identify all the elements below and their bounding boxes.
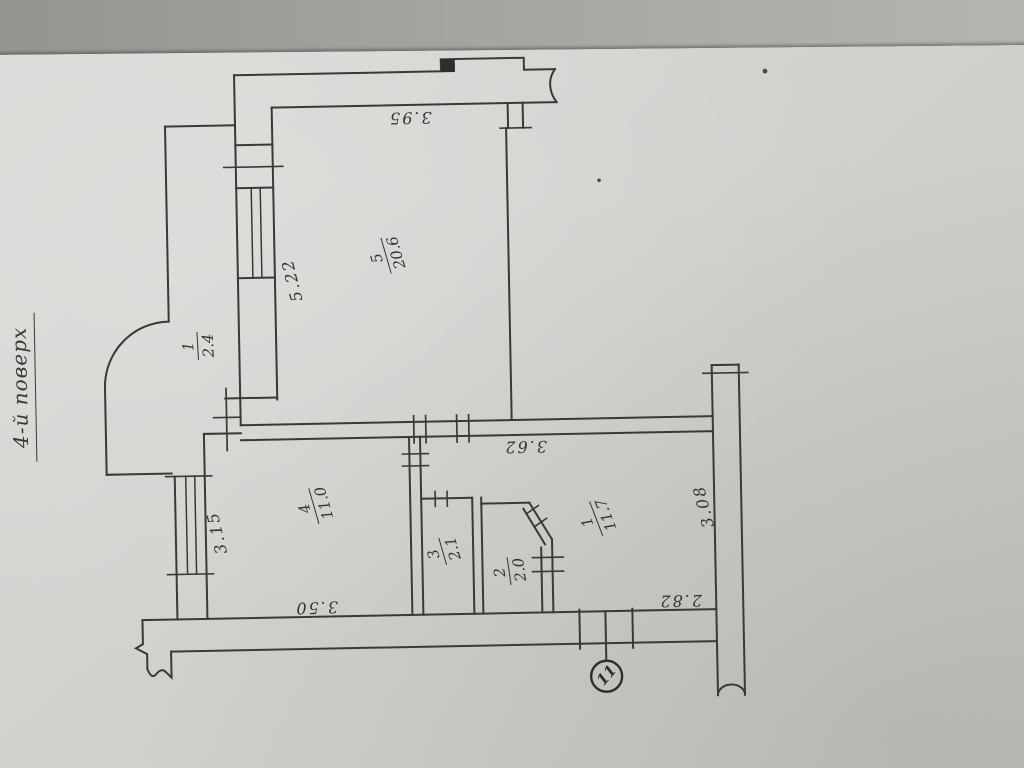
door-jamb-middle-3 (457, 415, 458, 442)
dimension-bottom-right: 2.82 (658, 591, 702, 611)
wall-right-outer (739, 365, 745, 695)
break-line-top-right (550, 69, 557, 102)
door-tick-corridor (214, 417, 241, 418)
floor-plan-drawing (0, 0, 1024, 768)
wall-room3-right-a (472, 498, 474, 614)
window-divider-1 (235, 145, 272, 146)
wall-middle-bottom-edge (241, 431, 713, 440)
door-jamb-middle-1 (414, 416, 415, 443)
room4-top-step (204, 433, 241, 434)
apartment-leader-line (605, 611, 606, 660)
window-room4-tick-top (166, 476, 212, 477)
entry-door-jamb-right (632, 609, 633, 648)
wall-middle-top-edge (241, 416, 713, 425)
window-glazing-2 (260, 188, 262, 278)
break-line-bottom-right (718, 684, 745, 695)
wall-room5-right (506, 128, 512, 420)
window-tick-upper (224, 166, 283, 167)
room2-number: 2 (490, 565, 510, 581)
wall-room5-tick (500, 128, 531, 129)
wall-room2-top (481, 503, 529, 504)
wall-overhang-left (165, 127, 169, 322)
door-jamb-middle-4 (469, 415, 470, 442)
balcony-wall-bottom (107, 474, 172, 475)
wall-room4-outer (175, 476, 178, 619)
balcony-area: 2.4 (196, 331, 217, 360)
entry-door-jamb-left (579, 610, 580, 649)
wall-right-inner (712, 365, 718, 695)
window-divider-2 (236, 188, 273, 189)
dimension-bottom-left: 3.50 (294, 598, 338, 619)
wall-room3-right-b (481, 498, 483, 614)
window-room4-glazing-1 (186, 476, 188, 574)
door-tick-room1-2 (533, 571, 564, 572)
room-label-2: 2 2.0 (489, 555, 531, 588)
room-label-balcony: 1 2.4 (178, 331, 217, 361)
stair-break-wave (147, 652, 171, 678)
wall-room2-chamfer-a (529, 502, 552, 539)
wall-top-inner (272, 102, 557, 107)
door-tick-room1-1 (532, 557, 563, 558)
corridor-bottom-edge (225, 398, 277, 399)
room2-area: 2.0 (507, 555, 531, 585)
door-jamb-middle-2 (426, 416, 427, 443)
balcony-arc (104, 322, 170, 388)
window-room4-glazing-2 (195, 476, 197, 574)
stair-break-left (135, 620, 147, 669)
scanned-floor-plan-photo: 4-й поверх 3.95 5.22 3.62 3.15 3.50 2.82… (0, 0, 1024, 768)
window-divider-3 (238, 278, 275, 279)
dimension-middle: 3.62 (503, 437, 547, 457)
wall-room3-left-b (420, 437, 423, 615)
wall-room2-right-a (552, 539, 553, 612)
wall-right-cap (712, 365, 739, 366)
wall-bottom-bottom-edge (171, 641, 717, 651)
door-jamb-corridor (226, 388, 227, 450)
window-room4-tick-bottom (168, 574, 214, 575)
dimension-top: 3.95 (388, 108, 432, 128)
wall-right-tick (703, 372, 748, 373)
wall-notch-fill (441, 59, 455, 72)
window-glazing-1 (251, 188, 253, 278)
wall-corridor-outer (234, 75, 241, 425)
balcony-wall-left (105, 388, 107, 475)
dust-speck-2 (597, 178, 601, 182)
wall-top-outer (234, 57, 555, 75)
dust-speck-1 (763, 69, 768, 74)
wall-corridor-inner (272, 108, 278, 400)
wall-overhang-top (165, 125, 235, 126)
wall-room3-left-a (409, 437, 412, 615)
floor-title: 4-й поверх (7, 313, 38, 463)
wall-bottom-top-edge (142, 609, 716, 620)
floor-plan: 4-й поверх 3.95 5.22 3.62 3.15 3.50 2.82… (0, 0, 1024, 768)
balcony-number: 1 (179, 339, 198, 354)
